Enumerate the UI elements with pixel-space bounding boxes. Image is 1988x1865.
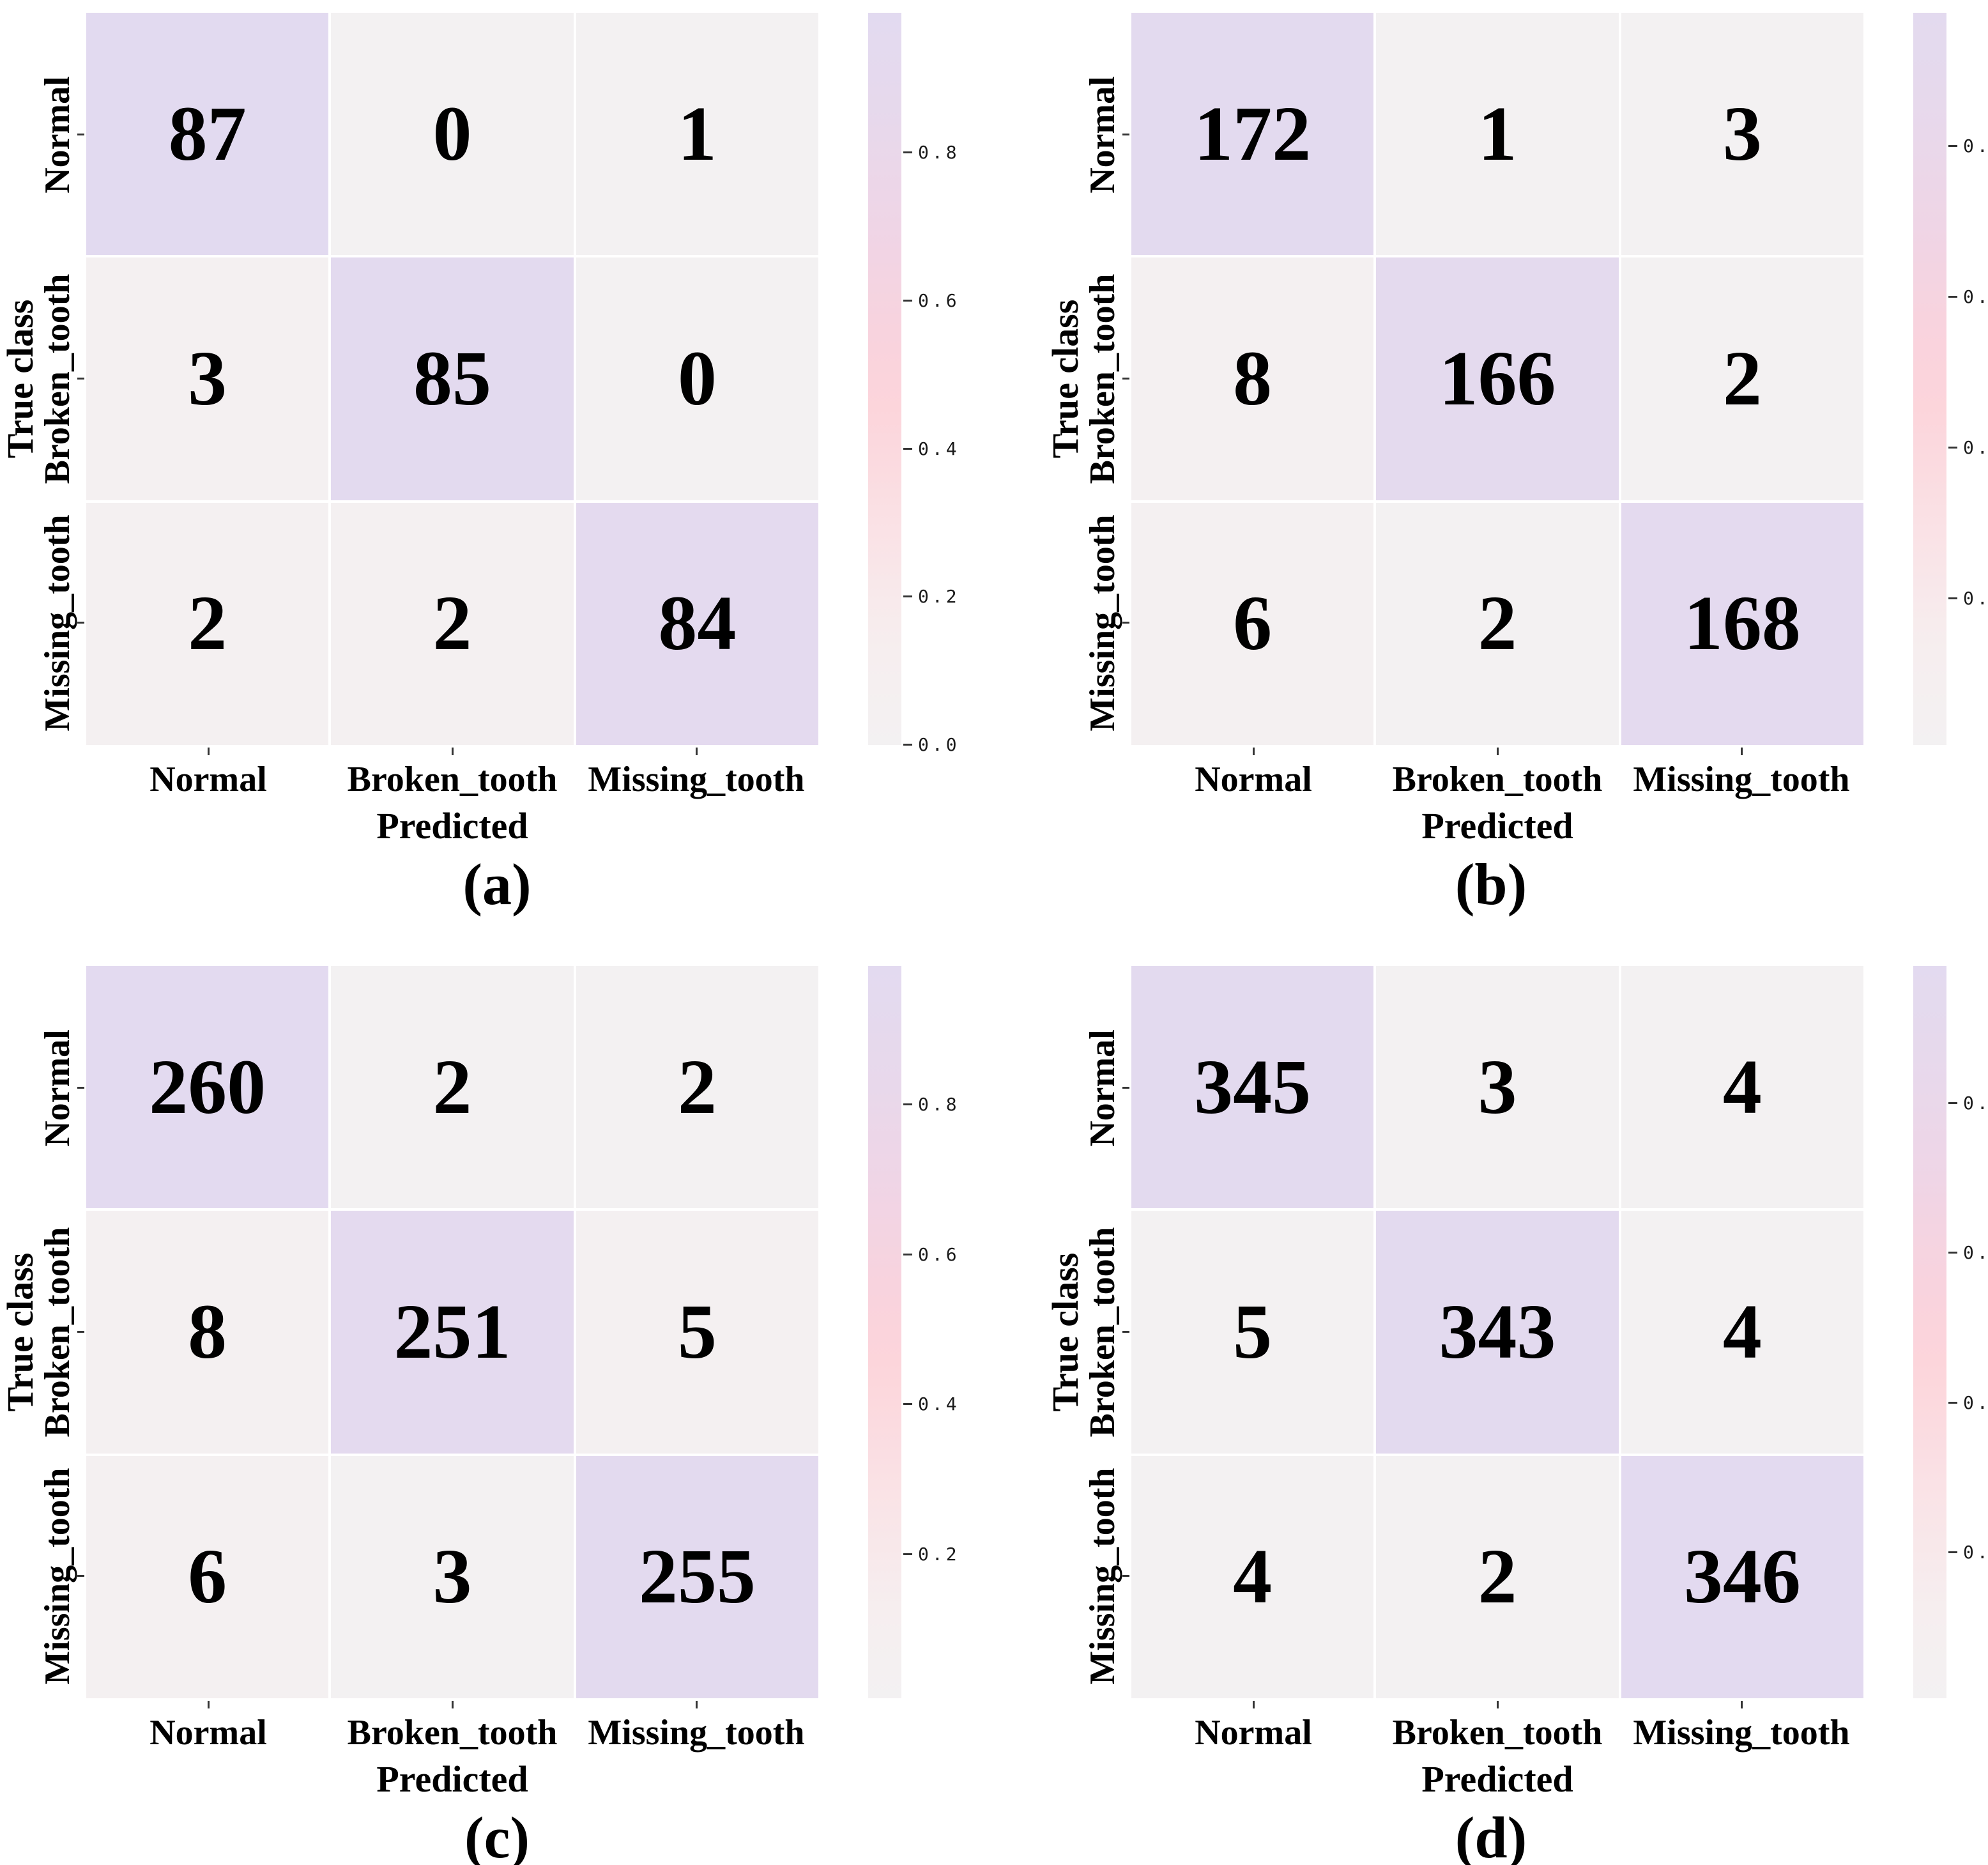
heatmap: 870138502284 [86,13,818,745]
row-tick-label: Broken_tooth [40,1227,75,1438]
row-tick-label: Broken_tooth [40,274,75,484]
cell-value: 5 [1233,1293,1272,1371]
x-axis-label: Predicted [1421,808,1573,845]
heatmap-cell: 6 [86,1456,328,1698]
colorbar-gradient [868,13,901,745]
confusion-matrix-figure: 870138502284True classNormalBroken_tooth… [0,0,1988,1865]
cell-value: 172 [1194,95,1311,173]
heatmap: 345345343442346 [1131,966,1863,1698]
col-tick-label: Missing_tooth [588,762,804,797]
y-axis-label: True class [1047,1253,1084,1412]
col-tick-label: Normal [1195,762,1312,797]
colorbar-tick-label: 0.4 [918,440,960,458]
cell-value: 255 [639,1538,756,1616]
heatmap-cell: 0 [576,257,818,500]
row-tick-label: Missing_tooth [40,1468,75,1684]
cell-value: 346 [1684,1538,1801,1616]
panel-a: 870138502284True classNormalBroken_tooth… [0,0,994,932]
colorbar [1913,966,1946,1698]
cell-value: 3 [1723,95,1762,173]
cell-value: 4 [1723,1293,1762,1371]
x-axis-tick [452,748,454,755]
colorbar-tick-label: 0.0 [918,736,960,754]
panel-caption: (a) [463,855,531,914]
heatmap-cell: 8 [1131,257,1373,500]
x-axis-tick [696,1701,698,1708]
y-axis-tick [77,1331,84,1333]
heatmap-cell: 3 [331,1456,573,1698]
heatmap-cell: 3 [1376,966,1618,1208]
row-tick-label: Broken_tooth [1085,1227,1120,1438]
heatmap-cell: 1 [1376,13,1618,255]
heatmap-cell: 2 [1376,503,1618,745]
cell-value: 87 [169,95,247,173]
colorbar-gradient [1913,13,1946,745]
heatmap-cell: 5 [1131,1211,1373,1453]
colorbar-tick-mark [1948,1102,1957,1104]
colorbar-tick-label: 0.8 [918,144,960,162]
colorbar-tick-mark [1948,597,1957,599]
y-axis-label: True class [2,1253,39,1412]
heatmap-cell: 4 [1621,966,1863,1208]
panel-d: 345345343442346True classNormalBroken_to… [994,933,1988,1865]
panel-caption: (c) [464,1808,530,1865]
heatmap-cell: 5 [576,1211,818,1453]
cell-value: 3 [188,340,227,418]
y-axis-tick [1122,1087,1129,1089]
y-axis-tick [1122,1575,1129,1577]
cell-value: 168 [1684,585,1801,663]
colorbar-tick-label: 0.2 [1963,590,1988,608]
colorbar-tick-mark [1948,1551,1957,1553]
colorbar-tick-mark [903,1403,912,1405]
cell-value: 251 [394,1293,510,1371]
heatmap-cell: 2 [576,966,818,1208]
col-tick-label: Broken_tooth [1393,762,1603,797]
cell-value: 4 [1233,1538,1272,1616]
cell-value: 3 [1478,1048,1517,1126]
colorbar [868,13,901,745]
colorbar-tick-mark [903,1103,912,1105]
heatmap-cell: 2 [331,503,573,745]
heatmap: 172138166262168 [1131,13,1863,745]
colorbar-tick-label: 0.6 [918,292,960,310]
colorbar-tick-label: 0.6 [918,1246,960,1264]
cell-value: 1 [1478,95,1517,173]
row-tick-label: Normal [40,76,75,194]
heatmap-cell: 260 [86,966,328,1208]
col-tick-label: Missing_tooth [588,1715,804,1751]
panel-caption: (d) [1455,1808,1527,1865]
heatmap-cell: 166 [1376,257,1618,500]
colorbar-tick-label: 0.2 [918,588,960,606]
heatmap-cell: 4 [1131,1456,1373,1698]
colorbar-tick-label: 0.6 [1963,288,1988,306]
cell-value: 2 [678,1048,717,1126]
colorbar-tick-mark [1948,145,1957,147]
cell-value: 85 [413,340,491,418]
heatmap: 260228251563255 [86,966,818,1698]
x-axis-label: Predicted [376,808,528,845]
colorbar-tick-label: 0.6 [1963,1244,1988,1262]
heatmap-cell: 346 [1621,1456,1863,1698]
y-axis-tick [77,1575,84,1577]
heatmap-cell: 0 [331,13,573,255]
heatmap-cell: 84 [576,503,818,745]
x-axis-tick [208,1701,210,1708]
colorbar-tick-mark [903,744,912,746]
row-tick-label: Missing_tooth [1085,1468,1120,1684]
cell-value: 2 [432,1048,471,1126]
heatmap-cell: 4 [1621,1211,1863,1453]
col-tick-label: Broken_tooth [348,762,558,797]
heatmap-cell: 168 [1621,503,1863,745]
y-axis-tick [77,1087,84,1089]
cell-value: 3 [432,1538,471,1616]
colorbar-tick-label: 0.4 [1963,1394,1988,1412]
cell-value: 4 [1723,1048,1762,1126]
colorbar-tick-mark [903,595,912,597]
row-tick-label: Normal [1085,76,1120,194]
cell-value: 260 [149,1048,266,1126]
x-axis-tick [1253,748,1255,755]
y-axis-tick [77,622,84,624]
colorbar-gradient [1913,966,1946,1698]
x-axis-tick [208,748,210,755]
colorbar [1913,13,1946,745]
y-axis-tick [77,378,84,380]
cell-value: 2 [188,585,227,663]
heatmap-cell: 2 [1621,257,1863,500]
y-axis-tick [1122,134,1129,135]
y-axis-tick [77,134,84,135]
heatmap-cell: 3 [1621,13,1863,255]
cell-value: 8 [188,1293,227,1371]
heatmap-cell: 172 [1131,13,1373,255]
col-tick-label: Broken_tooth [1393,1715,1603,1751]
y-axis-label: True class [1047,300,1084,459]
colorbar-tick-mark [903,448,912,450]
row-tick-label: Missing_tooth [1085,514,1120,731]
heatmap-cell: 255 [576,1456,818,1698]
colorbar-tick-label: 0.8 [918,1096,960,1114]
cell-value: 2 [1723,340,1762,418]
cell-value: 1 [678,95,717,173]
cell-value: 345 [1194,1048,1311,1126]
heatmap-cell: 251 [331,1211,573,1453]
y-axis-tick [1122,378,1129,380]
heatmap-cell: 87 [86,13,328,255]
y-axis-tick [1122,1331,1129,1333]
panel-caption: (b) [1455,855,1527,914]
cell-value: 6 [188,1538,227,1616]
colorbar-tick-mark [1948,1402,1957,1404]
x-axis-tick [1741,748,1743,755]
heatmap-cell: 6 [1131,503,1373,745]
colorbar-tick-label: 0.8 [1963,1094,1988,1112]
colorbar-tick-mark [903,1553,912,1555]
cell-value: 2 [1478,1538,1517,1616]
cell-value: 343 [1439,1293,1556,1371]
heatmap-cell: 343 [1376,1211,1618,1453]
colorbar-tick-mark [903,151,912,153]
colorbar-tick-label: 0.4 [1963,439,1988,457]
colorbar-tick-label: 0.2 [918,1546,960,1563]
colorbar-tick-mark [1948,296,1957,298]
x-axis-tick [1741,1701,1743,1708]
y-axis-tick [1122,622,1129,624]
colorbar-tick-label: 0.8 [1963,137,1988,155]
cell-value: 0 [678,340,717,418]
cell-value: 84 [658,585,736,663]
cell-value: 6 [1233,585,1272,663]
heatmap-cell: 2 [86,503,328,745]
col-tick-label: Missing_tooth [1633,1715,1849,1751]
col-tick-label: Broken_tooth [348,1715,558,1751]
panel-c: 260228251563255True classNormalBroken_to… [0,933,994,1865]
row-tick-label: Missing_tooth [40,514,75,731]
panel-b: 172138166262168True classNormalBroken_to… [994,0,1988,932]
y-axis-label: True class [2,300,39,459]
colorbar-tick-mark [1948,447,1957,449]
cell-value: 8 [1233,340,1272,418]
x-axis-label: Predicted [376,1761,528,1798]
colorbar-tick-label: 0.4 [918,1395,960,1413]
heatmap-cell: 85 [331,257,573,500]
col-tick-label: Normal [149,762,267,797]
x-axis-tick [1253,1701,1255,1708]
x-axis-tick [452,1701,454,1708]
row-tick-label: Normal [40,1029,75,1147]
heatmap-cell: 2 [331,966,573,1208]
cell-value: 166 [1439,340,1556,418]
heatmap-cell: 8 [86,1211,328,1453]
col-tick-label: Missing_tooth [1633,762,1849,797]
heatmap-cell: 345 [1131,966,1373,1208]
colorbar-tick-mark [1948,1252,1957,1254]
cell-value: 2 [432,585,471,663]
x-axis-tick [1497,1701,1499,1708]
x-axis-tick [1497,748,1499,755]
col-tick-label: Normal [1195,1715,1312,1751]
heatmap-cell: 2 [1376,1456,1618,1698]
colorbar-tick-mark [903,1254,912,1255]
cell-value: 5 [678,1293,717,1371]
col-tick-label: Normal [149,1715,267,1751]
colorbar-tick-label: 0.2 [1963,1544,1988,1562]
cell-value: 0 [432,95,471,173]
x-axis-label: Predicted [1421,1761,1573,1798]
heatmap-cell: 3 [86,257,328,500]
colorbar-tick-mark [903,300,912,302]
x-axis-tick [696,748,698,755]
row-tick-label: Broken_tooth [1085,274,1120,484]
heatmap-cell: 1 [576,13,818,255]
cell-value: 2 [1478,585,1517,663]
colorbar [868,966,901,1698]
colorbar-gradient [868,966,901,1698]
row-tick-label: Normal [1085,1029,1120,1147]
